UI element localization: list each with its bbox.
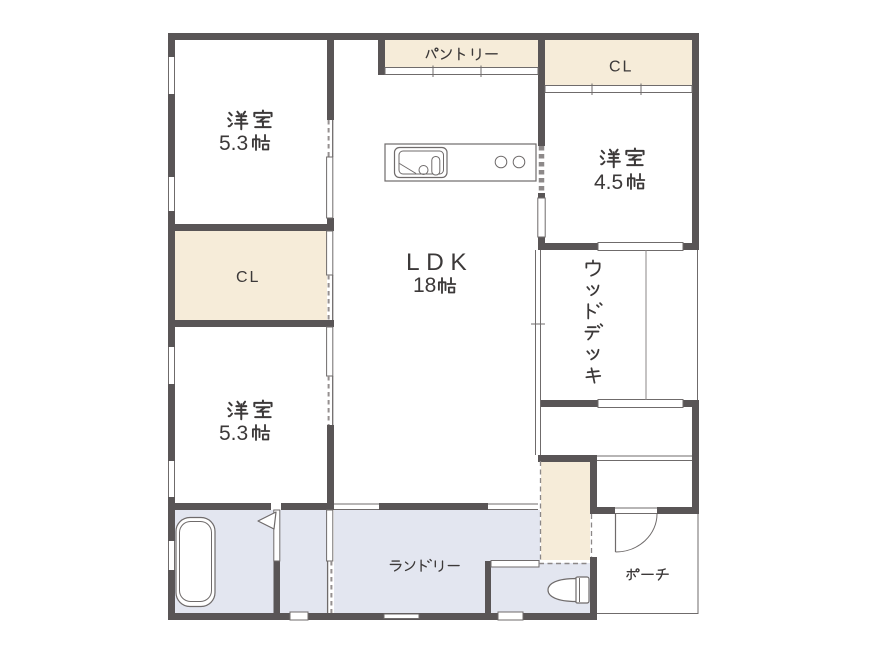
svg-text:5.3: 5.3 (219, 132, 248, 155)
svg-text:CL: CL (236, 269, 260, 286)
svg-text:4.5: 4.5 (594, 171, 623, 194)
svg-text:CL: CL (609, 59, 633, 76)
svg-text:5.3: 5.3 (219, 422, 248, 445)
svg-text:LDK: LDK (406, 249, 473, 276)
svg-text:18: 18 (413, 274, 436, 297)
